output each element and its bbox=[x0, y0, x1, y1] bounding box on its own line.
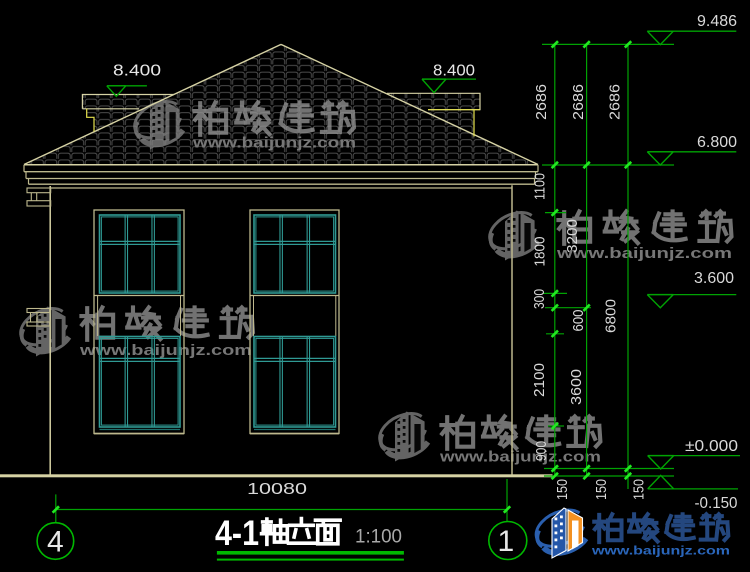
svg-text:www.baijunjz.com: www.baijunjz.com bbox=[439, 450, 601, 466]
svg-text:10080: 10080 bbox=[247, 481, 308, 498]
svg-text:1800: 1800 bbox=[532, 237, 549, 267]
svg-text:3.600: 3.600 bbox=[694, 270, 734, 287]
svg-text:www.baijunjz.com: www.baijunjz.com bbox=[79, 343, 252, 359]
svg-text:www.baijunjz.com: www.baijunjz.com bbox=[591, 544, 730, 558]
svg-text:2686: 2686 bbox=[570, 84, 587, 120]
svg-text:www.baijunjz.com: www.baijunjz.com bbox=[192, 136, 356, 152]
svg-text:2100: 2100 bbox=[531, 363, 548, 397]
svg-text:www.baijunjz.com: www.baijunjz.com bbox=[556, 246, 732, 262]
svg-text:-0.150: -0.150 bbox=[695, 495, 738, 512]
svg-text:1: 1 bbox=[497, 525, 514, 558]
svg-text:8.400: 8.400 bbox=[433, 63, 475, 80]
svg-text:3600: 3600 bbox=[568, 369, 585, 405]
svg-text:600: 600 bbox=[570, 310, 587, 332]
svg-text:9.486: 9.486 bbox=[697, 13, 737, 30]
svg-text:2686: 2686 bbox=[533, 84, 550, 120]
svg-text:900: 900 bbox=[533, 441, 550, 461]
svg-text:4: 4 bbox=[47, 526, 64, 559]
svg-text:±0.000: ±0.000 bbox=[685, 438, 738, 455]
svg-text:6.800: 6.800 bbox=[697, 134, 737, 151]
svg-text:150: 150 bbox=[593, 479, 610, 500]
svg-text:1100: 1100 bbox=[532, 173, 549, 200]
svg-text:6800: 6800 bbox=[603, 299, 620, 333]
svg-text:3200: 3200 bbox=[564, 219, 581, 253]
svg-text:8.400: 8.400 bbox=[113, 63, 161, 80]
svg-text:1:100: 1:100 bbox=[355, 527, 402, 548]
svg-text:2686: 2686 bbox=[607, 84, 624, 120]
svg-text:150: 150 bbox=[631, 479, 648, 500]
svg-text:300: 300 bbox=[531, 289, 548, 309]
svg-text:150: 150 bbox=[554, 479, 571, 500]
svg-text:4-1: 4-1 bbox=[215, 514, 259, 553]
